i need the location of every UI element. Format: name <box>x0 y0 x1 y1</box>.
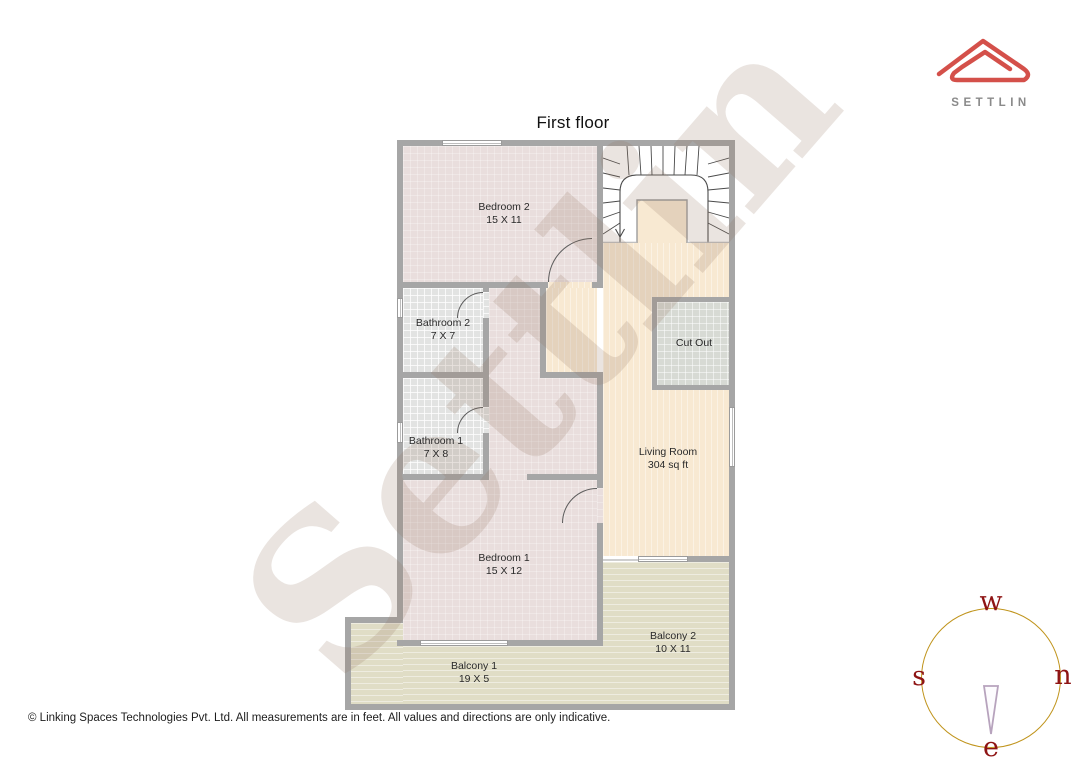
window-living-balcony2 <box>638 556 688 562</box>
compass-needle-icon <box>979 682 1003 738</box>
room-label-bathroom2: Bathroom 2 7 X 7 <box>383 317 503 342</box>
room-name: Bathroom 1 <box>376 435 496 448</box>
room-name: Cut Out <box>634 337 754 350</box>
settlin-logo-icon <box>935 33 1035 91</box>
room-dims: 15 X 11 <box>434 214 574 227</box>
hall-strip-floor <box>546 288 597 372</box>
room-dims: 10 X 11 <box>603 643 743 656</box>
room-label-bedroom1: Bedroom 1 15 X 12 <box>434 552 574 577</box>
wall-outer-left-upper <box>397 140 403 623</box>
wall-outer-bottom <box>345 704 735 710</box>
floor-plan-page: { "title": "First floor", "watermark": "… <box>0 0 1080 764</box>
bathroom2-door-opening <box>483 292 489 318</box>
room-name: Living Room <box>598 446 738 459</box>
window-bedroom1-balcony <box>420 640 508 646</box>
room-dims: 15 X 12 <box>434 565 574 578</box>
wall-outer-left-lower <box>345 617 351 710</box>
room-name: Bathroom 2 <box>383 317 503 330</box>
corridor-lower-floor <box>489 378 597 474</box>
room-label-living: Living Room 304 sq ft <box>598 446 738 471</box>
wall-balcony-step <box>345 617 403 623</box>
room-dims: 7 X 8 <box>376 448 496 461</box>
logo-roof-path <box>939 41 1028 80</box>
corridor-passage-gap <box>489 372 540 378</box>
room-label-balcony2: Balcony 2 10 X 11 <box>603 630 743 655</box>
room-name: Balcony 1 <box>404 660 544 673</box>
plan-title: First floor <box>453 113 693 133</box>
wall-bedroom2-bottom-stub <box>592 282 603 288</box>
room-label-balcony1: Balcony 1 19 X 5 <box>404 660 544 685</box>
wall-bedroom1-top <box>527 474 603 480</box>
wall-bathroom1-bottom <box>397 474 489 480</box>
room-label-bathroom1: Bathroom 1 7 X 8 <box>376 435 496 460</box>
bathroom1-door-opening <box>483 407 489 433</box>
bedroom2-door-opening <box>548 282 592 288</box>
compass-dir-left: s <box>899 664 939 690</box>
room-label-bedroom2: Bedroom 2 15 X 11 <box>434 201 574 226</box>
room-dims: 19 X 5 <box>404 673 544 686</box>
wall-bathrooms-divider <box>397 372 489 378</box>
compass-dir-bottom: e <box>971 735 1011 761</box>
balcony1-left-floor <box>351 623 403 704</box>
bedroom1-entry-gap <box>489 474 527 480</box>
room-label-cutout: Cut Out <box>634 337 754 350</box>
room-name: Bedroom 1 <box>434 552 574 565</box>
window-bedroom2-top <box>442 140 502 146</box>
brand-wordmark: SETTLIN <box>925 97 1057 109</box>
stair-landing-notch <box>637 200 687 243</box>
room-name: Bedroom 2 <box>434 201 574 214</box>
bedroom1-door-opening <box>597 488 603 523</box>
window-bathroom2-left <box>397 298 403 318</box>
room-name: Balcony 2 <box>603 630 743 643</box>
wall-bedroom2-bottom <box>397 282 548 288</box>
copyright-text: © Linking Spaces Technologies Pvt. Ltd. … <box>28 712 610 724</box>
room-dims: 304 sq ft <box>598 459 738 472</box>
wall-corridor-divider <box>540 282 546 378</box>
staircase <box>603 146 729 243</box>
compass: w s n e <box>899 585 1080 760</box>
needle-triangle <box>984 686 998 734</box>
compass-dir-top: w <box>971 589 1011 615</box>
room-dims: 7 X 7 <box>383 330 503 343</box>
living-room-floor <box>603 243 729 556</box>
wall-hall-bottom <box>540 372 603 378</box>
wall-balcony2-top <box>688 556 729 562</box>
compass-dir-right: n <box>1043 663 1080 689</box>
